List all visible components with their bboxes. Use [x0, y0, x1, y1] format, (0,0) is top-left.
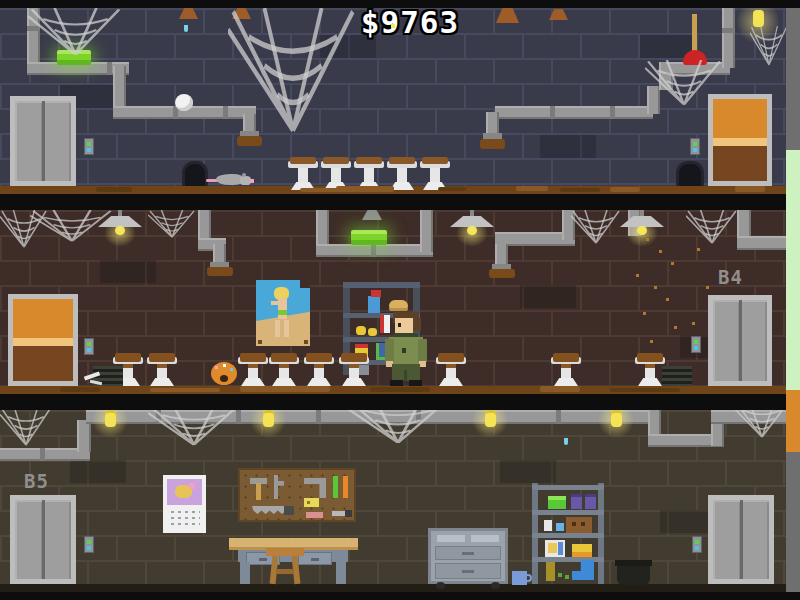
toilet-pedestal	[331, 168, 341, 183]
character-eye	[398, 323, 401, 327]
shaft-strip-gray	[786, 452, 800, 592]
call-button-green[interactable]	[87, 342, 91, 346]
donut-sprinkle	[215, 366, 218, 369]
rust-dirt	[489, 269, 515, 278]
pipe-riser	[77, 420, 91, 452]
elevator-door-gap	[740, 500, 743, 579]
door-panel	[713, 146, 767, 181]
wrench-icon	[274, 475, 284, 499]
cobweb	[30, 210, 114, 242]
pipe-joint	[722, 28, 735, 33]
lamp-stem	[640, 210, 644, 217]
drawer-handle	[462, 552, 474, 555]
call-button-blue[interactable]	[695, 546, 699, 550]
square-tool-icon	[304, 478, 326, 498]
rust-dirt	[480, 139, 505, 149]
dark-brick	[70, 460, 126, 483]
toilet-paper-wad[interactable]	[175, 94, 193, 111]
cheese-hole	[307, 501, 310, 504]
dirt-patch	[516, 186, 548, 191]
elevator-door-gap	[739, 300, 742, 381]
straw-hat	[389, 300, 408, 308]
dirt-patch	[540, 386, 580, 392]
box-dot	[581, 522, 585, 526]
elevator-door-left	[713, 300, 740, 381]
dust-particle	[674, 326, 677, 329]
cabinet-drawer[interactable]	[435, 563, 501, 579]
rat-nose	[250, 179, 254, 183]
dirt-patch	[438, 187, 466, 191]
character-hand	[419, 361, 426, 367]
poster-figure-bikini	[278, 310, 287, 315]
call-button-green[interactable]	[693, 142, 697, 146]
spray-nozzle	[371, 290, 381, 297]
elevator-door-right	[43, 101, 71, 181]
dust-particle	[697, 248, 700, 251]
cabinet-handle-slot	[437, 535, 465, 542]
pipe-elbow	[495, 244, 508, 266]
toilet-base	[241, 378, 265, 386]
ceiling-lamp	[450, 210, 494, 250]
call-button-blue[interactable]	[693, 148, 697, 152]
drawer-handle	[259, 558, 267, 561]
floor-divider	[0, 194, 800, 210]
vent-grate	[662, 366, 692, 386]
toilet-stain	[389, 157, 415, 164]
call-button-blue[interactable]	[694, 346, 698, 350]
plunger-handle	[692, 14, 697, 54]
stool-crossbar	[276, 569, 294, 574]
calendar	[163, 475, 206, 533]
dirt-patch	[370, 387, 430, 392]
rat	[206, 172, 256, 188]
toilet-pedestal	[248, 364, 258, 379]
knife-handle-icon	[345, 510, 352, 517]
shaft-strip-green	[786, 150, 800, 390]
dirt-patch	[336, 186, 394, 192]
toilet-pedestal	[349, 364, 359, 379]
toilet-stain	[356, 157, 382, 164]
call-button-panel[interactable]	[692, 536, 702, 553]
dirt-patch	[240, 386, 330, 392]
elevator-door-left	[15, 101, 43, 181]
toilet[interactable]	[287, 157, 319, 190]
yellow-box	[572, 544, 592, 557]
floor-label-b4: B4	[718, 266, 743, 288]
cobweb-icon	[148, 406, 240, 446]
spray-bottle	[368, 296, 380, 313]
elevator-doors[interactable]	[708, 495, 774, 584]
dirt-patch	[560, 188, 600, 192]
dark-brick	[540, 135, 596, 158]
elevator-doors[interactable]	[708, 295, 772, 386]
character-button	[402, 348, 406, 353]
pipe-joint	[550, 106, 555, 119]
toilet[interactable]	[268, 353, 300, 386]
floor-label-b5: B5	[24, 470, 49, 492]
donut-sprinkle	[223, 364, 226, 367]
cobweb-icon	[750, 26, 788, 66]
dark-brick	[520, 285, 576, 308]
pipe-joint	[371, 244, 376, 257]
cobweb	[148, 406, 240, 446]
dirt-patch	[96, 187, 132, 192]
bulb-core	[263, 410, 274, 427]
pipe-joint	[107, 62, 112, 75]
lamp-stem	[118, 210, 122, 217]
cobweb-icon	[148, 210, 196, 238]
toilet-pedestal	[645, 364, 655, 379]
toilet-base	[342, 378, 366, 386]
donut-hole	[220, 375, 228, 382]
shaft-strip-orange	[786, 390, 800, 452]
screwdriver-green-icon	[333, 476, 338, 498]
workbench-leg	[336, 562, 346, 584]
pipe	[316, 244, 433, 257]
wooden-door[interactable]	[8, 294, 78, 386]
money-counter: $9763	[330, 4, 490, 40]
elevator-door-right	[43, 500, 71, 579]
door-panel	[713, 138, 767, 145]
elevator-door-gap	[42, 500, 45, 579]
toilet-pedestal	[446, 364, 456, 379]
dust-particle	[706, 286, 709, 289]
dirt-patch	[610, 388, 680, 392]
calendar-picture-blob	[189, 483, 195, 489]
cobweb-icon	[571, 210, 621, 244]
cobweb	[28, 8, 123, 56]
rust-dirt	[237, 136, 262, 146]
toilet-pedestal	[157, 364, 167, 379]
workbench-leg	[240, 562, 250, 584]
dirt-patch	[735, 186, 765, 192]
dirt-patch	[610, 187, 640, 192]
toilet-pedestal	[279, 364, 289, 379]
toilet-stain	[240, 353, 266, 362]
poster-figure-body	[278, 298, 287, 319]
small-item	[558, 573, 562, 577]
poster-figure-arm	[271, 301, 278, 305]
calendar-grid	[169, 509, 200, 529]
trash-pot-rim	[615, 560, 652, 566]
lamp-bulb	[637, 226, 647, 235]
toilet-pedestal	[364, 168, 374, 183]
dirt-patch	[60, 387, 100, 392]
toilet-base	[638, 378, 662, 386]
mug	[512, 571, 527, 585]
call-button-blue[interactable]	[87, 348, 91, 352]
poster-torn-corner	[300, 280, 310, 288]
door-panel	[13, 299, 73, 338]
dark-brick	[500, 460, 556, 483]
rat-hole	[676, 161, 704, 186]
shelf-board	[532, 485, 604, 490]
call-button-green[interactable]	[87, 540, 91, 544]
pipe	[495, 106, 653, 119]
drawer-handle	[462, 570, 474, 573]
floor-divider	[0, 394, 800, 410]
toilet[interactable]	[435, 353, 467, 386]
poster-figure-leg	[284, 320, 289, 337]
cobweb	[0, 408, 52, 446]
pipe	[420, 210, 433, 252]
toilet[interactable]	[419, 157, 451, 190]
dust-particle	[671, 262, 674, 265]
cobweb	[686, 210, 738, 244]
wooden-door[interactable]	[708, 94, 772, 186]
purple-jar	[585, 494, 596, 509]
call-button-green[interactable]	[694, 340, 698, 344]
poster-pin	[258, 340, 262, 344]
saw-icon	[252, 506, 286, 514]
character-hair-side	[413, 318, 421, 331]
cabinet-handle-slot	[471, 535, 499, 542]
drawer-handle	[311, 558, 319, 561]
game-viewport: B4	[0, 0, 800, 600]
water-drip	[184, 25, 188, 32]
light-switch[interactable]	[690, 138, 700, 155]
poster-figure-leg	[275, 320, 280, 337]
pipe	[737, 236, 786, 250]
eraser-icon	[306, 512, 323, 518]
bulb-core	[611, 410, 622, 427]
saw-handle-icon	[284, 506, 294, 515]
picture	[548, 543, 557, 553]
duck-toy	[368, 328, 377, 336]
dust-particle	[636, 274, 639, 277]
shelf-board	[532, 533, 604, 538]
cobweb	[148, 210, 196, 238]
water-drip	[564, 438, 568, 445]
poster-pin	[304, 340, 308, 344]
cobweb-icon	[0, 408, 52, 446]
elevator-door-left	[15, 500, 43, 579]
cobweb	[571, 210, 621, 244]
shelf-board	[343, 282, 420, 288]
box-dot	[572, 522, 576, 526]
screwdriver-orange-icon	[343, 476, 348, 498]
toilet-stain	[290, 157, 316, 164]
toilet[interactable]	[146, 353, 178, 386]
toilet-stain	[271, 353, 297, 362]
rat-hole	[182, 161, 208, 186]
lamp-bulb	[115, 226, 125, 235]
green-box	[548, 496, 566, 509]
toilet-stain	[553, 353, 579, 362]
rat-ear	[242, 173, 246, 177]
blue-boot	[572, 560, 594, 580]
ceiling-lamp	[620, 210, 664, 250]
elevator-door-left	[713, 500, 741, 579]
floor-line	[0, 584, 786, 592]
elevator-door-gap	[42, 101, 45, 181]
toilet-pedestal	[397, 168, 407, 183]
lamp-bulb	[467, 226, 477, 235]
toilet-stain	[637, 353, 663, 362]
picture-edge	[558, 542, 563, 555]
cabinet-wheel	[491, 582, 500, 589]
toilet-stain	[115, 353, 141, 362]
call-button-panel[interactable]	[84, 138, 94, 155]
shelf-board	[532, 510, 604, 515]
dust-particle	[646, 238, 649, 241]
pipe-elbow	[486, 112, 499, 135]
dust-particle	[643, 312, 646, 315]
toilet-pedestal	[314, 364, 324, 379]
toilet[interactable]	[550, 353, 582, 386]
character-arm	[418, 339, 427, 362]
pipe	[722, 8, 735, 68]
light-bulb	[753, 10, 764, 27]
toilet-pedestal	[298, 168, 308, 183]
pipe-joint	[316, 410, 321, 424]
lamp-stem	[470, 210, 474, 217]
dust-particle	[650, 340, 653, 343]
green-tube-light	[351, 230, 387, 245]
hammer-handle-icon	[256, 483, 261, 500]
toilet-base	[439, 378, 463, 386]
cabinet-drawer[interactable]	[435, 546, 501, 560]
dust-particle	[654, 286, 657, 289]
purple-jar	[571, 494, 582, 509]
door-panel	[713, 99, 767, 138]
pipe-joint	[40, 448, 45, 461]
call-button-panel[interactable]	[84, 536, 94, 553]
elevator-door-right	[741, 500, 769, 579]
dust-particle	[659, 250, 662, 253]
toilet-pedestal	[430, 168, 440, 183]
donut-sprinkle	[230, 368, 233, 371]
small-item	[565, 575, 569, 579]
pegboard	[238, 468, 356, 522]
white-cup	[544, 520, 552, 531]
pipe-joint	[556, 410, 561, 424]
cobweb-icon	[30, 210, 114, 242]
bulb-core	[485, 410, 496, 427]
donut[interactable]	[211, 362, 237, 385]
toilet-base	[307, 378, 331, 386]
character-leg-gap	[404, 370, 407, 381]
call-button-green[interactable]	[695, 540, 699, 544]
toilet-pedestal	[123, 364, 133, 379]
light-switch[interactable]	[84, 338, 94, 355]
door-panel	[13, 346, 73, 381]
pipe-joint	[610, 106, 615, 119]
character-shoe	[409, 380, 422, 386]
tool-cabinet	[428, 528, 508, 584]
toilet-stain	[306, 353, 332, 362]
dirt-patch	[150, 388, 220, 392]
toilet[interactable]	[237, 353, 269, 386]
toilet[interactable]	[338, 353, 370, 386]
toilet-base	[150, 378, 174, 386]
call-button-blue[interactable]	[87, 546, 91, 550]
brown-box	[566, 517, 592, 533]
elevator-doors[interactable]	[10, 495, 76, 584]
toilet-stain	[422, 157, 448, 164]
elevator-door-right	[740, 300, 767, 381]
toilet-stain	[341, 353, 367, 362]
dust-particle	[666, 298, 669, 301]
door-panel	[13, 338, 73, 345]
toilet[interactable]	[303, 353, 335, 386]
duck-toy	[356, 326, 366, 335]
character-arm	[385, 339, 394, 362]
toilet-stain	[438, 353, 464, 362]
cobweb-icon	[686, 210, 738, 244]
dark-brick	[100, 260, 156, 283]
blue-item	[556, 523, 564, 531]
dust-particle	[692, 322, 695, 325]
cobweb	[750, 26, 788, 66]
cabinet-wheel	[436, 582, 445, 589]
rust-dirt	[207, 267, 233, 276]
shaft-strip-gray	[786, 8, 800, 150]
bottle	[546, 562, 555, 581]
toilet-base	[554, 378, 578, 386]
bulb-core	[105, 410, 116, 427]
call-button-panel[interactable]	[691, 336, 701, 353]
call-button-green[interactable]	[87, 142, 91, 146]
pipe	[213, 244, 226, 264]
pinup-poster	[256, 280, 310, 346]
cobweb-icon	[28, 8, 123, 56]
call-button-blue[interactable]	[87, 148, 91, 152]
player-character[interactable]	[384, 312, 428, 386]
picture-box	[545, 540, 565, 557]
elevator-doors[interactable]	[10, 96, 76, 186]
sparkle-particle	[391, 24, 395, 28]
toilet-pedestal	[561, 364, 571, 379]
character-shoe	[390, 380, 403, 386]
toilet-stain	[149, 353, 175, 362]
toilet-base	[272, 378, 296, 386]
toilet-stain	[323, 157, 349, 164]
storage-shelf	[532, 483, 604, 584]
floor-divider	[0, 592, 800, 600]
